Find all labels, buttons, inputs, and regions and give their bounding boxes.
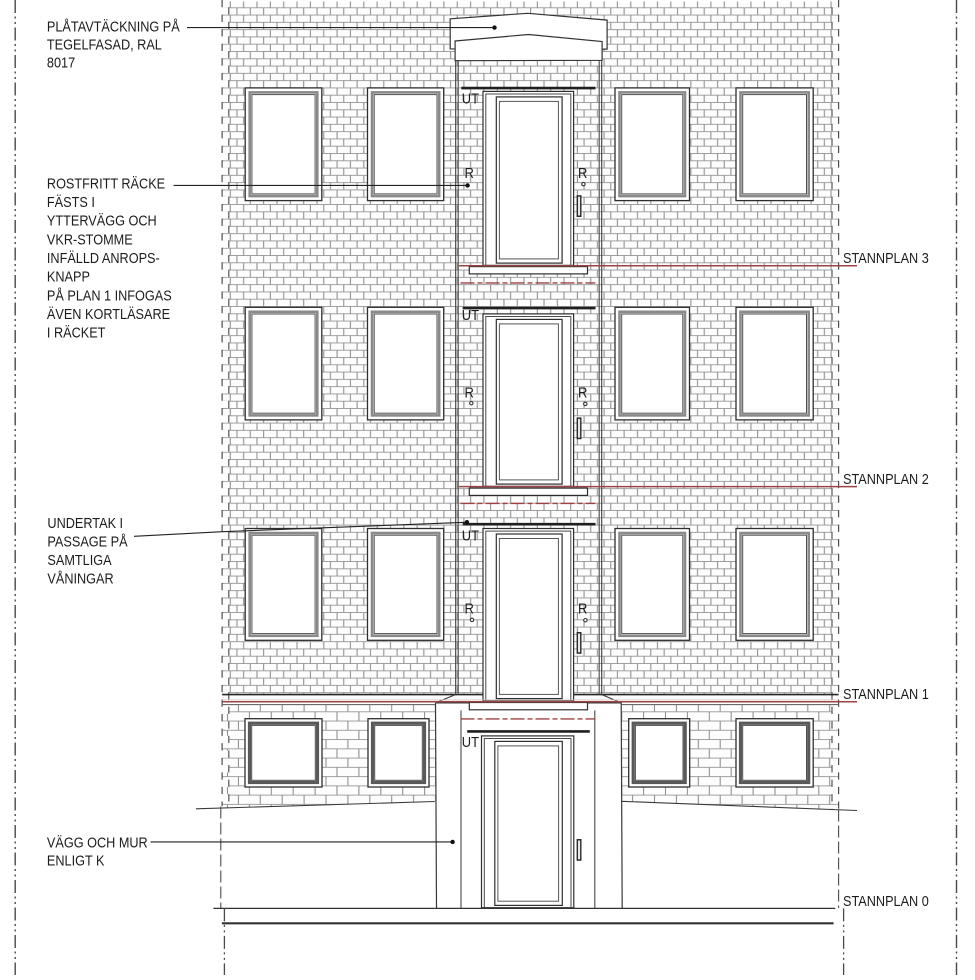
svg-text:UT: UT bbox=[462, 90, 480, 107]
svg-text:SAMTLIGA: SAMTLIGA bbox=[47, 552, 112, 568]
svg-text:ÄVEN KORTLÄSARE: ÄVEN KORTLÄSARE bbox=[47, 306, 170, 322]
svg-text:R: R bbox=[578, 600, 587, 617]
svg-text:R: R bbox=[465, 384, 474, 401]
svg-text:R: R bbox=[578, 164, 587, 181]
svg-text:PASSAGE PÅ: PASSAGE PÅ bbox=[47, 534, 128, 550]
svg-text:PÅ PLAN 1 INFOGAS: PÅ PLAN 1 INFOGAS bbox=[47, 287, 172, 303]
svg-text:R: R bbox=[578, 384, 587, 401]
svg-text:ROSTFRITT RÄCKE: ROSTFRITT RÄCKE bbox=[47, 175, 165, 191]
svg-text:UT: UT bbox=[462, 527, 480, 544]
svg-text:VKR-STOMME: VKR-STOMME bbox=[47, 231, 133, 247]
svg-text:KNAPP: KNAPP bbox=[47, 269, 90, 285]
svg-text:VÅNINGAR: VÅNINGAR bbox=[47, 570, 113, 586]
svg-text:PLÅTAVTÄCKNING PÅ: PLÅTAVTÄCKNING PÅ bbox=[47, 19, 181, 35]
svg-text:VÄGG OCH MUR: VÄGG OCH MUR bbox=[47, 834, 148, 850]
svg-text:UT: UT bbox=[462, 733, 480, 750]
svg-text:ENLIGT K: ENLIGT K bbox=[47, 853, 105, 869]
svg-text:STANNPLAN 2: STANNPLAN 2 bbox=[843, 471, 929, 487]
svg-text:R: R bbox=[465, 164, 474, 181]
svg-text:R: R bbox=[465, 600, 474, 617]
svg-text:YTTERVÄGG OCH: YTTERVÄGG OCH bbox=[47, 213, 157, 229]
svg-text:STANNPLAN 3: STANNPLAN 3 bbox=[843, 250, 929, 266]
svg-text:STANNPLAN 1: STANNPLAN 1 bbox=[843, 686, 929, 702]
svg-text:FÄSTS I: FÄSTS I bbox=[47, 194, 95, 210]
svg-text:INFÄLLD ANROPS-: INFÄLLD ANROPS- bbox=[47, 250, 160, 266]
svg-text:UNDERTAK I: UNDERTAK I bbox=[47, 515, 123, 531]
svg-text:TEGELFASAD, RAL: TEGELFASAD, RAL bbox=[47, 37, 162, 53]
svg-text:UT: UT bbox=[462, 306, 480, 323]
svg-text:I RÄCKET: I RÄCKET bbox=[47, 325, 106, 341]
svg-text:8017: 8017 bbox=[47, 55, 75, 71]
svg-text:STANNPLAN 0: STANNPLAN 0 bbox=[843, 893, 929, 909]
